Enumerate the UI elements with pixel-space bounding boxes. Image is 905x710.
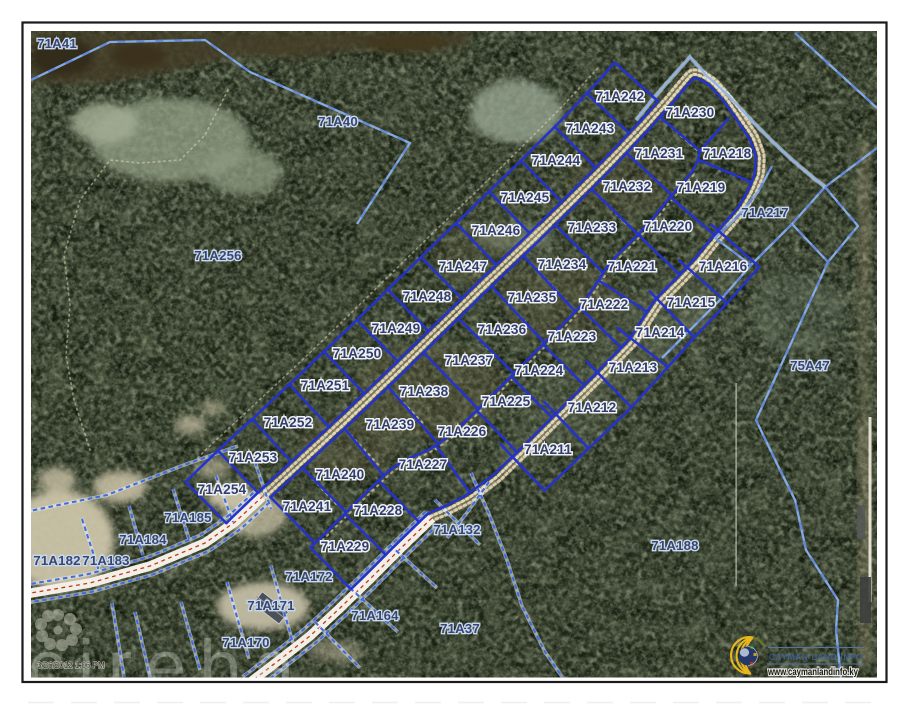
svg-text:71A226: 71A226 <box>438 424 487 439</box>
svg-text:71A239: 71A239 <box>366 417 415 432</box>
svg-text:71A231: 71A231 <box>635 146 684 161</box>
svg-text:71A224: 71A224 <box>515 363 564 378</box>
svg-text:71A171: 71A171 <box>247 598 294 613</box>
svg-text:71A250: 71A250 <box>333 346 382 361</box>
svg-text:71A223: 71A223 <box>548 329 597 344</box>
svg-text:71A245: 71A245 <box>501 190 550 205</box>
svg-text:71A227: 71A227 <box>399 457 448 472</box>
svg-text:71A215: 71A215 <box>667 295 716 310</box>
svg-text:71A164: 71A164 <box>351 608 399 623</box>
svg-text:71A256: 71A256 <box>194 248 241 263</box>
svg-text:71A40: 71A40 <box>318 114 358 129</box>
svg-text:71A222: 71A222 <box>580 297 629 312</box>
svg-text:71A253: 71A253 <box>229 450 278 465</box>
svg-text:71A185: 71A185 <box>164 510 211 525</box>
svg-text:71A244: 71A244 <box>532 153 581 168</box>
svg-text:71A214: 71A214 <box>636 325 685 340</box>
svg-text:CAYMAN LAND INFO: CAYMAN LAND INFO <box>769 652 863 663</box>
svg-text:71A211: 71A211 <box>524 442 572 457</box>
svg-text:71A37: 71A37 <box>440 621 480 636</box>
svg-text:71A221: 71A221 <box>608 259 657 274</box>
svg-text:71A246: 71A246 <box>472 223 521 238</box>
svg-text:71A230: 71A230 <box>666 105 715 120</box>
svg-text:71A237: 71A237 <box>445 353 494 368</box>
svg-text:71A216: 71A216 <box>699 259 748 274</box>
svg-text:71A243: 71A243 <box>566 121 615 136</box>
svg-text:71A183: 71A183 <box>82 553 129 568</box>
svg-text:75A47: 75A47 <box>790 358 830 373</box>
svg-text:71A172: 71A172 <box>285 569 332 584</box>
svg-text:71A228: 71A228 <box>354 503 403 518</box>
svg-text:71A218: 71A218 <box>703 146 752 161</box>
svg-text:71A220: 71A220 <box>644 219 693 234</box>
svg-text:71A251: 71A251 <box>301 378 350 393</box>
svg-text:71A249: 71A249 <box>372 321 421 336</box>
svg-text:71A212: 71A212 <box>568 400 617 415</box>
svg-text:71A241: 71A241 <box>283 499 332 514</box>
svg-text:71A248: 71A248 <box>403 289 452 304</box>
svg-text:71A188: 71A188 <box>651 538 698 553</box>
svg-text:71A238: 71A238 <box>400 384 449 399</box>
svg-text:71A132: 71A132 <box>433 522 480 537</box>
svg-text:71A234: 71A234 <box>538 257 587 272</box>
svg-text:71A254: 71A254 <box>198 482 247 497</box>
svg-text:71A240: 71A240 <box>316 467 365 482</box>
svg-text:71A252: 71A252 <box>264 415 313 430</box>
svg-text:71A219: 71A219 <box>677 180 726 195</box>
svg-text:71A232: 71A232 <box>603 179 652 194</box>
svg-text:71A236: 71A236 <box>478 322 527 337</box>
svg-text:3/26/2012 1:06 PM: 3/26/2012 1:06 PM <box>37 661 105 670</box>
svg-text:71A182: 71A182 <box>33 553 80 568</box>
svg-text:www.caymanlandinfo.ky: www.caymanlandinfo.ky <box>767 667 858 678</box>
svg-text:71A170: 71A170 <box>222 635 269 650</box>
svg-text:71A247: 71A247 <box>439 259 488 274</box>
svg-text:71A235: 71A235 <box>508 290 557 305</box>
svg-text:71A41: 71A41 <box>37 36 77 51</box>
svg-text:71A229: 71A229 <box>321 539 370 554</box>
svg-text:71A213: 71A213 <box>609 360 658 375</box>
svg-text:71A184: 71A184 <box>119 532 167 547</box>
svg-text:71A217: 71A217 <box>741 205 788 220</box>
svg-text:71A225: 71A225 <box>482 394 531 409</box>
svg-text:71A242: 71A242 <box>596 89 645 104</box>
svg-text:71A233: 71A233 <box>568 220 617 235</box>
